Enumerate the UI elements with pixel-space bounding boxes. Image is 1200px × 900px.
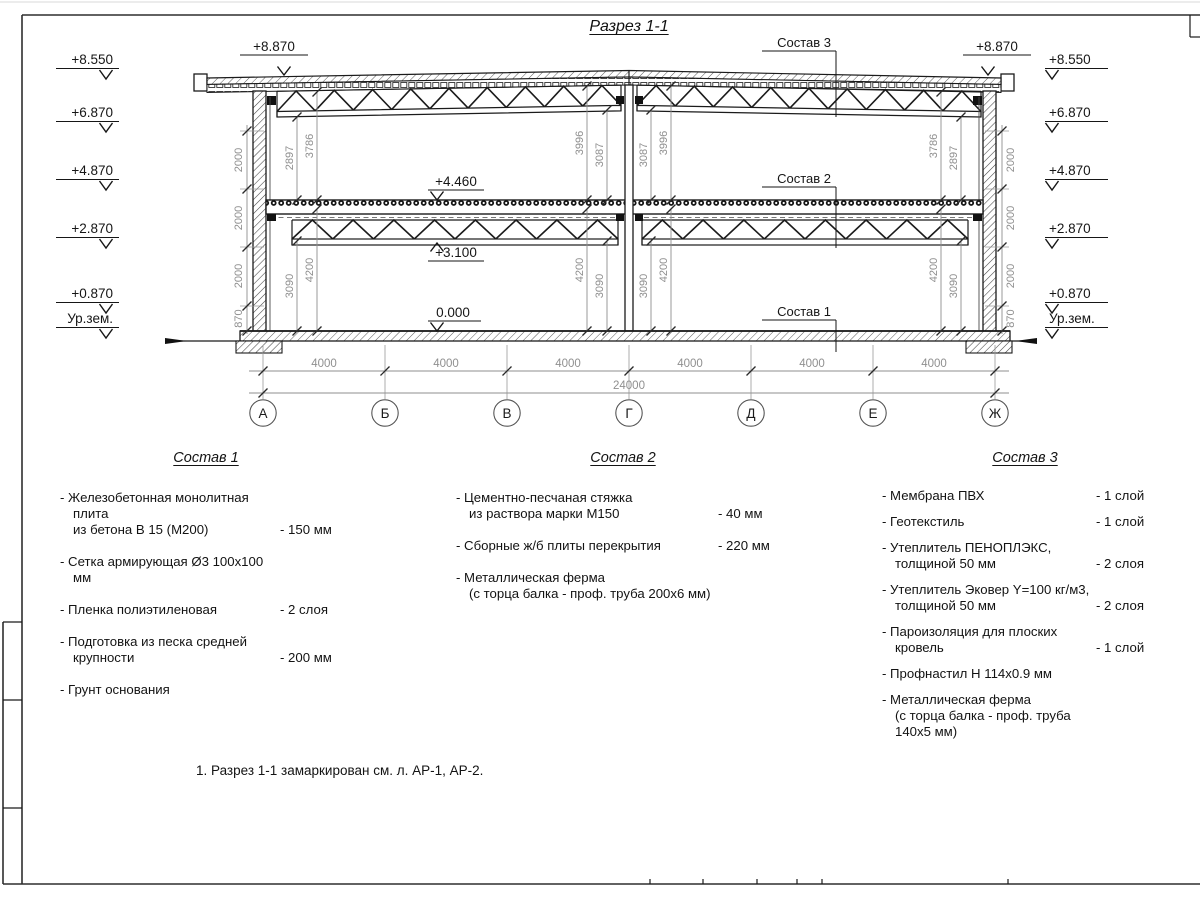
bay-dim: 4000 bbox=[311, 358, 337, 370]
material-name: - Сетка армирующая Ø3 100х100 мм bbox=[73, 554, 280, 586]
grid-axes: А Б В Г Д Е Ж bbox=[250, 400, 1008, 426]
ground-level-arrow-right bbox=[1015, 338, 1037, 344]
roof-truss-bottom-chord-left bbox=[277, 105, 621, 117]
dim-label: 2000 bbox=[233, 264, 245, 288]
dim-label: 4200 bbox=[658, 258, 670, 282]
material-name: - Утеплитель Эковер Y=100 кг/м3, bbox=[895, 582, 1096, 598]
elevation-mark: +4.870 bbox=[1049, 163, 1091, 178]
bay-dim: 4000 bbox=[677, 358, 703, 370]
dim-label: 3087 bbox=[638, 143, 650, 167]
material-item: - Металлическая ферма(с торца балка - пр… bbox=[456, 570, 790, 602]
composition-title: Состав 1 bbox=[60, 450, 352, 466]
leader-label-sostav2: Состав 2 bbox=[777, 171, 831, 186]
material-name: - Пленка полиэтиленовая bbox=[73, 602, 280, 618]
floor-truss-left bbox=[292, 220, 618, 239]
dim-label: 2000 bbox=[1005, 148, 1017, 172]
material-name: - Грунт основания bbox=[73, 682, 280, 698]
dim-label: 870 bbox=[1005, 309, 1017, 327]
parapet-marks: +8.870 +8.870 bbox=[240, 39, 1031, 75]
parapet-mark-left: +8.870 bbox=[253, 39, 295, 54]
material-thickness: - 40 мм bbox=[718, 506, 790, 522]
dim-label: 870 bbox=[233, 309, 245, 327]
elevation-marks-left: +8.550 +6.870 +4.870 +2.870 +0.870 Ур.зе… bbox=[56, 52, 119, 338]
elevation-mark: +0.870 bbox=[71, 286, 113, 301]
material-name: - Сборные ж/б плиты перекрытия bbox=[469, 538, 718, 554]
material-thickness: - 1 слой bbox=[1096, 640, 1168, 656]
dim-label: 3087 bbox=[594, 143, 606, 167]
sheet-note: 1. Разрез 1-1 замаркирован см. л. АР-1, … bbox=[196, 763, 483, 778]
grid-axis-label: Б bbox=[381, 406, 390, 421]
ground-level-label: Ур.зем. bbox=[1049, 311, 1095, 326]
material-name: - Железобетонная монолитная плита bbox=[73, 490, 280, 522]
material-item: - Геотекстиль - 1 слой bbox=[882, 514, 1168, 530]
dim-label: 2897 bbox=[948, 146, 960, 170]
level-mark-floor: +4.460 bbox=[435, 174, 477, 189]
composition-list-2: Состав 2 - Цементно-песчаная стяжкаиз ра… bbox=[456, 450, 790, 618]
floor-truss-right bbox=[642, 220, 968, 239]
elevation-mark: +4.870 bbox=[71, 163, 113, 178]
dim-label: 2000 bbox=[233, 148, 245, 172]
total-dim: 24000 bbox=[613, 380, 645, 392]
elevation-mark: +0.870 bbox=[1049, 286, 1091, 301]
internal-level-marks: +4.460 +3.100 0.000 bbox=[428, 174, 484, 331]
ground-level-arrow-left bbox=[165, 338, 187, 344]
material-name: - Утеплитель ПЕНОПЛЭКС, bbox=[895, 540, 1096, 556]
parapet-mark-right: +8.870 bbox=[976, 39, 1018, 54]
elevation-mark: +6.870 bbox=[1049, 105, 1091, 120]
bay-dim: 4000 bbox=[433, 358, 459, 370]
material-item: - Цементно-песчаная стяжкаиз раствора ма… bbox=[456, 490, 790, 522]
center-column bbox=[625, 85, 633, 331]
grid-axis-label: Д bbox=[746, 406, 755, 421]
dim-label: 2000 bbox=[233, 206, 245, 230]
dim-label: 2000 bbox=[1005, 206, 1017, 230]
material-item: - Подготовка из песка среднейкрупности -… bbox=[60, 634, 352, 666]
material-thickness: - 2 слоя bbox=[1096, 598, 1168, 614]
material-thickness: - 200 мм bbox=[280, 650, 352, 666]
material-name: - Профнастил Н 114х0.9 мм bbox=[895, 666, 1096, 682]
material-thickness: - 150 мм bbox=[280, 522, 352, 538]
elevation-mark: +2.870 bbox=[71, 221, 113, 236]
dim-label: 3090 bbox=[284, 274, 296, 298]
drawing-title: Разрез 1-1 bbox=[529, 18, 729, 36]
material-thickness: - 1 слой bbox=[1096, 514, 1168, 530]
material-name: - Подготовка из песка средней bbox=[73, 634, 280, 650]
elevation-mark: +8.550 bbox=[1049, 52, 1091, 67]
wall-left bbox=[253, 91, 266, 341]
foundation-left bbox=[236, 341, 282, 353]
material-name: - Металлическая ферма bbox=[895, 692, 1096, 708]
wall-right bbox=[983, 91, 996, 341]
material-thickness: - 2 слоя bbox=[280, 602, 352, 618]
grid-axis-label: Е bbox=[868, 406, 877, 421]
ground-level-label: Ур.зем. bbox=[67, 311, 113, 326]
level-mark-zero: 0.000 bbox=[436, 305, 470, 320]
floor-truss-bottom-chord-right bbox=[642, 239, 968, 245]
material-name: - Геотекстиль bbox=[895, 514, 1096, 530]
material-item: - Пароизоляция для плоских кровель - 1 с… bbox=[882, 624, 1168, 656]
material-item: - Сетка армирующая Ø3 100х100 мм bbox=[60, 554, 352, 586]
composition-title: Состав 2 bbox=[456, 450, 790, 466]
dim-label: 3090 bbox=[638, 274, 650, 298]
material-thickness: - 220 мм bbox=[718, 538, 790, 554]
dim-label: 2000 bbox=[1005, 264, 1017, 288]
material-thickness: - 1 слой bbox=[1096, 488, 1168, 504]
sheet-frame bbox=[0, 2, 1200, 884]
dim-label: 4200 bbox=[928, 258, 940, 282]
foundation-right bbox=[966, 341, 1012, 353]
horizontal-dim-chains: 4000 4000 4000 4000 4000 4000 24000 bbox=[249, 345, 1009, 399]
material-thickness: - 2 слоя bbox=[1096, 556, 1168, 572]
dim-label: 2897 bbox=[284, 146, 296, 170]
dim-label: 4200 bbox=[304, 258, 316, 282]
dim-label: 3996 bbox=[658, 131, 670, 155]
elevation-marks-right: +8.550 +6.870 +4.870 +2.870 +0.870 Ур.зе… bbox=[1045, 52, 1108, 338]
material-name: - Цементно-песчаная стяжка bbox=[469, 490, 718, 506]
dim-label: 3090 bbox=[594, 274, 606, 298]
elevation-mark: +8.550 bbox=[71, 52, 113, 67]
leader-label-sostav3: Состав 3 bbox=[777, 35, 831, 50]
bay-dim: 4000 bbox=[555, 358, 581, 370]
roof-edge-plate-right bbox=[1001, 74, 1014, 91]
grid-axis-label: Ж bbox=[989, 406, 1002, 421]
material-name: - Пароизоляция для плоских кровель bbox=[895, 624, 1096, 656]
material-item: - Железобетонная монолитная плитаиз бето… bbox=[60, 490, 352, 538]
material-item: - Металлическая ферма(с торца балка - пр… bbox=[882, 692, 1168, 740]
composition-title: Состав 3 bbox=[882, 450, 1168, 466]
dim-label: 3786 bbox=[928, 134, 940, 158]
grid-axis-label: В bbox=[502, 406, 511, 421]
material-item: - Утеплитель Эковер Y=100 кг/м3,толщиной… bbox=[882, 582, 1168, 614]
dim-label: 3996 bbox=[574, 131, 586, 155]
material-item: - Пленка полиэтиленовая - 2 слоя bbox=[60, 602, 352, 618]
roof-truss-bottom-chord-right bbox=[637, 105, 981, 117]
drawing-sheet: Состав 3 Состав 2 Состав 1 +4.460 +3.100… bbox=[0, 0, 1200, 900]
composition-list-3: Состав 3 - Мембрана ПВХ - 1 слой - Геоте… bbox=[882, 450, 1168, 750]
elevation-mark: +2.870 bbox=[1049, 221, 1091, 236]
material-item: - Сборные ж/б плиты перекрытия - 220 мм bbox=[456, 538, 790, 554]
dim-label: 3786 bbox=[304, 134, 316, 158]
bay-dim: 4000 bbox=[799, 358, 825, 370]
dim-label: 4200 bbox=[574, 258, 586, 282]
grid-axis-label: А bbox=[258, 406, 267, 421]
material-item: - Мембрана ПВХ - 1 слой bbox=[882, 488, 1168, 504]
leader-label-sostav1: Состав 1 bbox=[777, 304, 831, 319]
bay-dim: 4000 bbox=[921, 358, 947, 370]
elevation-mark: +6.870 bbox=[71, 105, 113, 120]
level-mark-truss: +3.100 bbox=[435, 245, 477, 260]
material-item: - Профнастил Н 114х0.9 мм bbox=[882, 666, 1168, 682]
ground-slab bbox=[165, 331, 1037, 353]
material-name: - Мембрана ПВХ bbox=[895, 488, 1096, 504]
composition-list-1: Состав 1 - Железобетонная монолитная пли… bbox=[60, 450, 352, 714]
material-item: - Грунт основания bbox=[60, 682, 352, 698]
dim-label: 3090 bbox=[948, 274, 960, 298]
grid-axis-label: Г bbox=[625, 406, 633, 421]
roof-edge-plate-left bbox=[194, 74, 207, 91]
material-item: - Утеплитель ПЕНОПЛЭКС,толщиной 50 мм - … bbox=[882, 540, 1168, 572]
material-name: - Металлическая ферма bbox=[469, 570, 718, 586]
